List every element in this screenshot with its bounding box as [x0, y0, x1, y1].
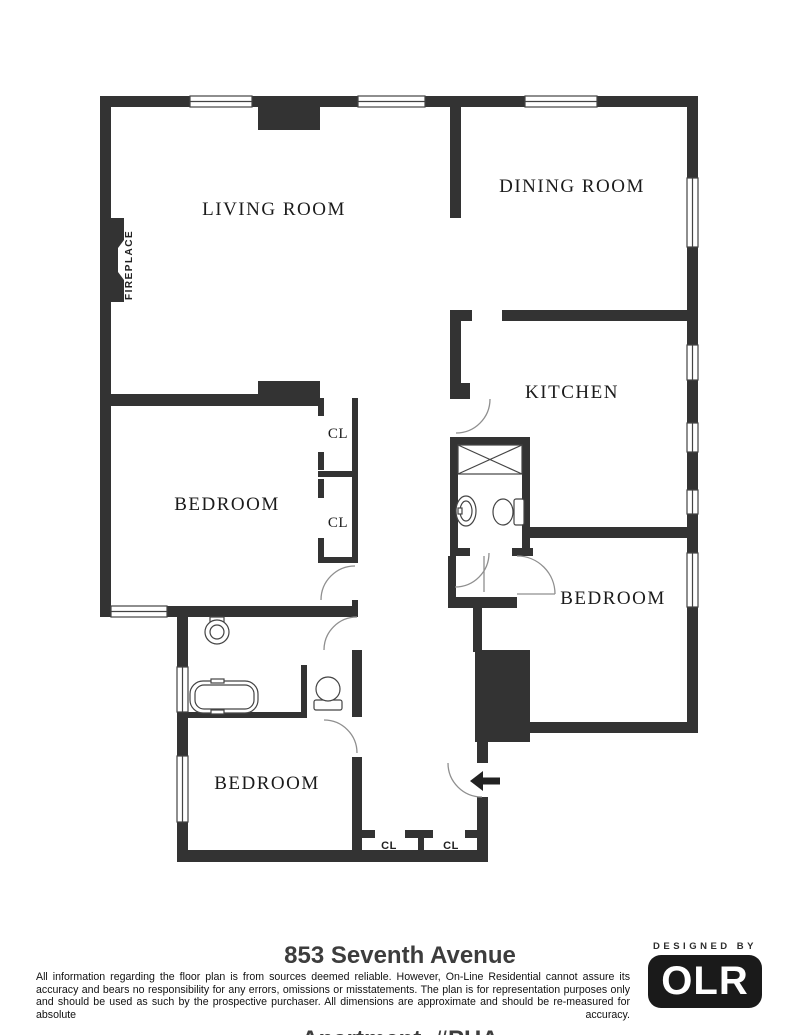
disclaimer-text: All information regarding the floor plan…: [36, 971, 630, 1021]
window: [687, 423, 698, 452]
address-line2: Apartment #PHA: [0, 1026, 800, 1035]
closet-label: CL: [381, 840, 397, 852]
toilet-icon: [493, 499, 524, 525]
window: [687, 553, 698, 607]
fireplace-label: FIREPLACE: [124, 230, 135, 300]
lower-bathroom-door-arc: [324, 617, 357, 650]
window: [177, 667, 188, 712]
left-bedroom-door-arc: [321, 566, 355, 600]
fireplace: [111, 218, 124, 302]
shower-x-box: [458, 445, 522, 474]
room-label-bedroom-right: BEDROOM: [560, 588, 666, 609]
bulkhead-top: [258, 107, 320, 130]
bottom-bedroom-door-arc: [324, 720, 357, 753]
closet-label: CL: [443, 840, 459, 852]
window: [177, 756, 188, 822]
window: [525, 96, 597, 107]
window: [687, 490, 698, 514]
room-label-bedroom-bottom: BEDROOM: [214, 773, 320, 794]
window: [687, 178, 698, 247]
room-label-bedroom-left: BEDROOM: [174, 494, 280, 515]
entry-arrow-icon: [470, 771, 500, 791]
window: [190, 96, 252, 107]
walls: [100, 96, 698, 862]
sink-icon: [205, 617, 229, 644]
window: [358, 96, 425, 107]
shaft-block: [475, 650, 530, 742]
bathtub-icon: [190, 679, 258, 714]
floor-plan-drawing: LIVING ROOM DINING ROOM KITCHEN BEDROOM …: [0, 0, 800, 1035]
right-bedroom-door-arc: [517, 556, 555, 594]
sink-icon: [456, 496, 476, 526]
toilet-icon: [314, 677, 342, 710]
designed-by-label: DESIGNED BY: [648, 941, 762, 952]
closet-label: CL: [328, 515, 348, 531]
room-label-kitchen: KITCHEN: [525, 382, 619, 403]
floor-plan-page: LIVING ROOM DINING ROOM KITCHEN BEDROOM …: [0, 0, 800, 1035]
closet-label: CL: [328, 426, 348, 442]
room-label-living-room: LIVING ROOM: [202, 199, 346, 220]
olr-logo-text: OLR: [661, 959, 748, 1004]
window: [111, 606, 167, 617]
kitchen-door-arc: [456, 399, 490, 433]
bulkhead-mid: [258, 381, 320, 394]
olr-logo: OLR: [648, 955, 762, 1008]
room-label-dining-room: DINING ROOM: [499, 176, 645, 197]
window: [687, 345, 698, 380]
